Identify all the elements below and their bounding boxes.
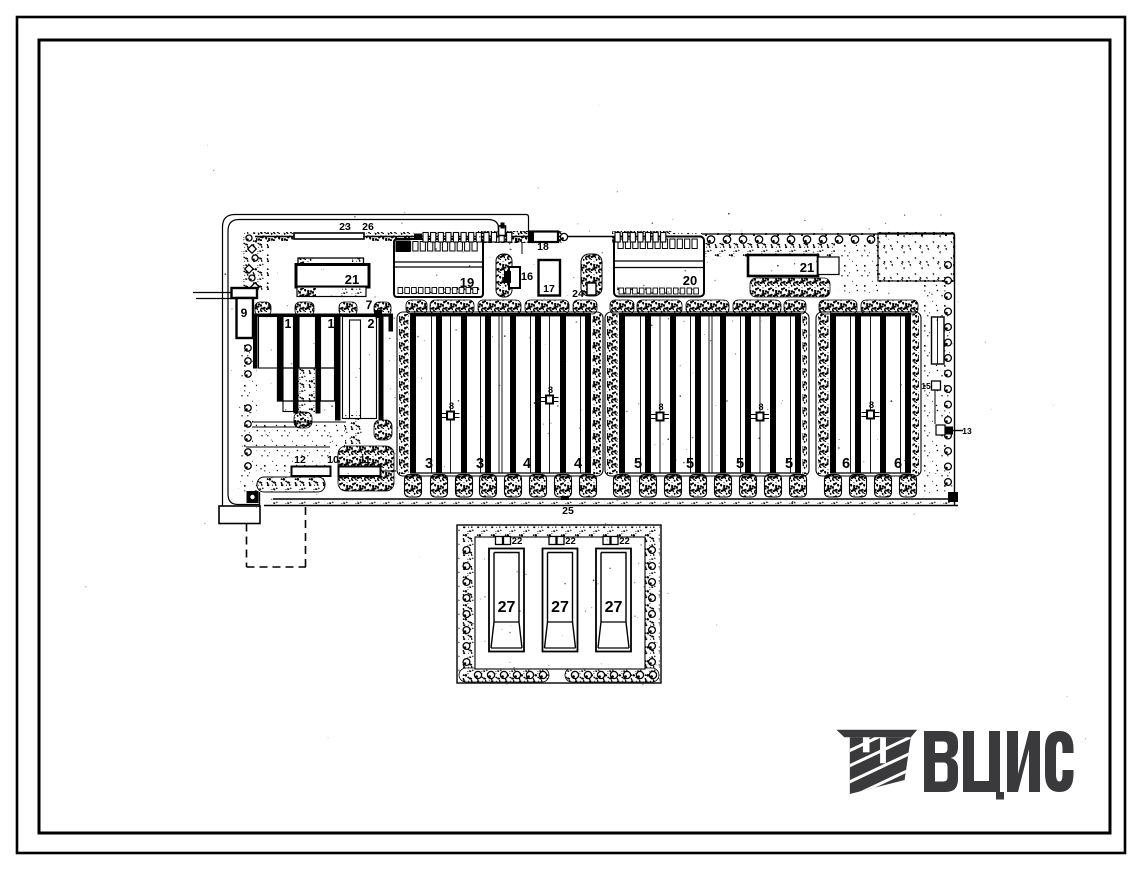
svg-text:27: 27 xyxy=(605,599,623,616)
svg-text:1: 1 xyxy=(328,317,335,331)
svg-text:8: 8 xyxy=(869,400,874,410)
svg-text:22: 22 xyxy=(565,536,576,547)
svg-text:16: 16 xyxy=(521,271,533,283)
svg-text:17: 17 xyxy=(543,283,555,295)
svg-text:15: 15 xyxy=(921,381,931,391)
svg-text:8: 8 xyxy=(758,402,763,412)
svg-text:4: 4 xyxy=(574,456,582,472)
svg-text:21: 21 xyxy=(800,260,814,275)
svg-text:20: 20 xyxy=(683,273,697,288)
svg-text:22: 22 xyxy=(512,536,523,547)
svg-text:4: 4 xyxy=(523,456,531,472)
svg-text:6: 6 xyxy=(894,456,902,472)
svg-text:9: 9 xyxy=(241,306,248,320)
svg-text:24: 24 xyxy=(572,288,584,300)
svg-text:8: 8 xyxy=(449,401,454,411)
svg-text:11: 11 xyxy=(359,454,370,466)
svg-text:1: 1 xyxy=(285,317,292,331)
svg-text:21: 21 xyxy=(345,272,359,287)
svg-text:3: 3 xyxy=(425,456,433,472)
svg-text:6: 6 xyxy=(842,456,850,472)
svg-text:10: 10 xyxy=(327,454,339,466)
svg-text:23: 23 xyxy=(339,221,351,233)
svg-text:25: 25 xyxy=(562,505,574,517)
svg-text:5: 5 xyxy=(634,456,642,472)
svg-text:3: 3 xyxy=(476,456,484,472)
svg-text:7: 7 xyxy=(366,298,373,312)
svg-text:27: 27 xyxy=(551,599,569,616)
svg-text:8: 8 xyxy=(548,385,553,395)
svg-text:22: 22 xyxy=(619,536,630,547)
svg-text:5: 5 xyxy=(686,456,694,472)
svg-text:12: 12 xyxy=(294,454,306,466)
svg-text:5: 5 xyxy=(785,456,793,472)
svg-text:26: 26 xyxy=(362,221,374,233)
svg-text:8: 8 xyxy=(658,402,663,412)
svg-text:2: 2 xyxy=(368,317,375,331)
svg-text:5: 5 xyxy=(736,456,744,472)
svg-text:13: 13 xyxy=(962,426,972,436)
svg-text:19: 19 xyxy=(460,275,474,290)
svg-text:27: 27 xyxy=(498,599,516,616)
